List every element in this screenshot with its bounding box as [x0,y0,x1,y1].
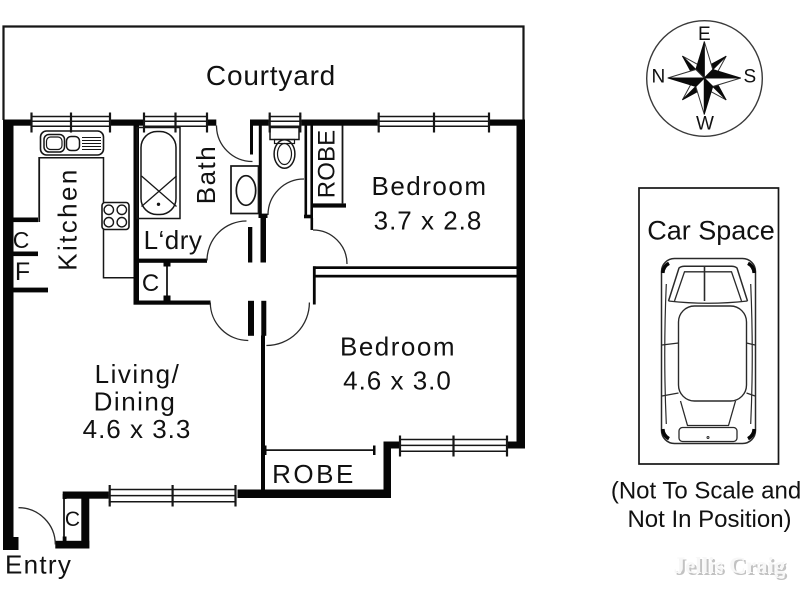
svg-text:Kitchen: Kitchen [53,167,83,271]
svg-text:L‘dry: L‘dry [144,225,203,255]
svg-text:ROBE: ROBE [272,459,356,489]
svg-text:Bath: Bath [191,145,221,205]
svg-text:ROBE: ROBE [314,130,341,198]
svg-text:Jellis Craig: Jellis Craig [674,553,786,578]
svg-text:C: C [13,227,30,253]
svg-text:Living/: Living/ [95,359,181,389]
svg-text:C: C [65,508,80,531]
svg-text:S: S [743,67,756,88]
svg-text:(Not To Scale and: (Not To Scale and [611,478,800,505]
svg-text:Not In Position): Not In Position) [627,506,791,533]
svg-text:4.6 x 3.3: 4.6 x 3.3 [83,414,192,444]
svg-text:C: C [142,270,159,297]
svg-text:Entry: Entry [5,550,72,580]
svg-text:Bedroom: Bedroom [340,332,456,362]
svg-text:Car Space: Car Space [647,216,775,246]
svg-text:W: W [696,114,714,135]
svg-text:Bedroom: Bedroom [372,171,488,201]
svg-text:Dining: Dining [94,387,177,417]
svg-text:3.7 x 2.8: 3.7 x 2.8 [374,206,483,236]
svg-text:N: N [652,67,666,88]
svg-text:4.6 x 3.0: 4.6 x 3.0 [343,366,452,396]
svg-text:E: E [698,24,711,45]
svg-text:F: F [15,258,30,286]
